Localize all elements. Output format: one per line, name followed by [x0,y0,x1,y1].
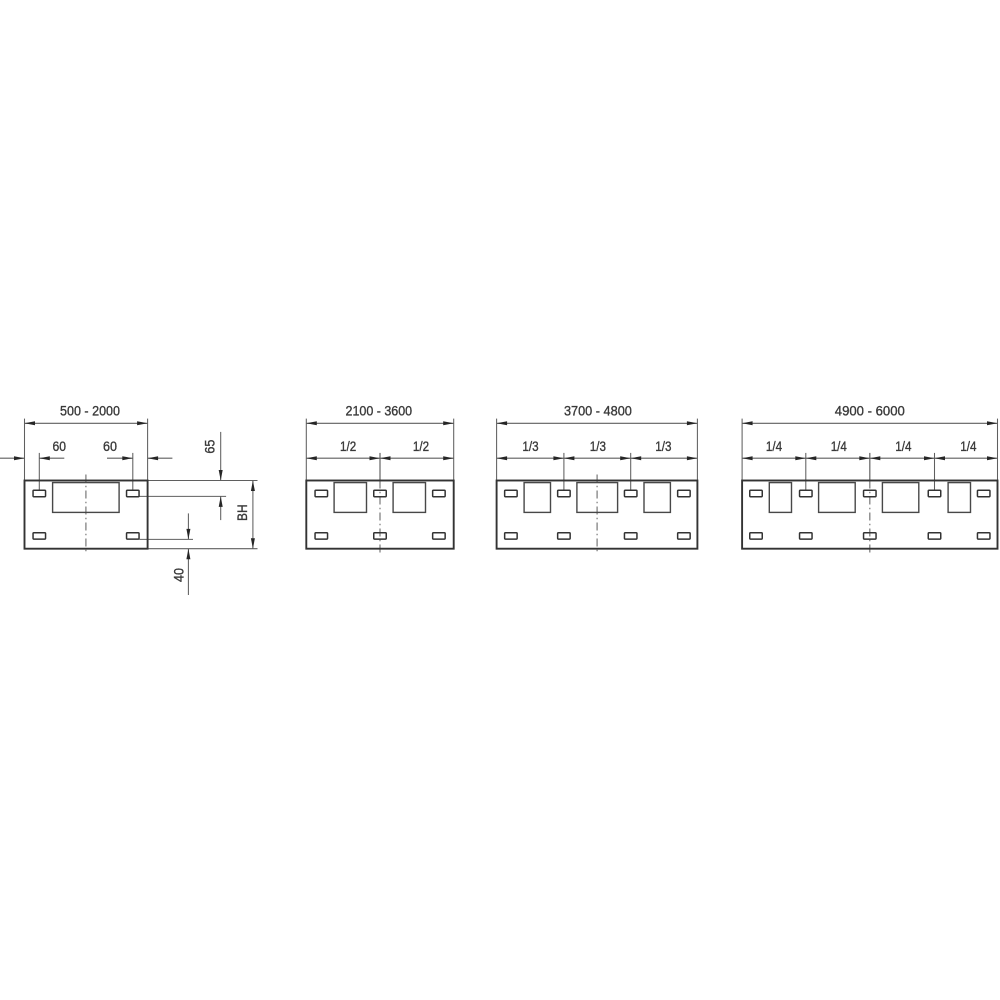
svg-text:3700 - 4800: 3700 - 4800 [564,403,632,419]
svg-text:500 - 2000: 500 - 2000 [60,403,120,419]
svg-text:1/3: 1/3 [522,439,538,455]
svg-text:65: 65 [202,440,218,454]
svg-text:1/3: 1/3 [655,439,671,455]
svg-text:1/3: 1/3 [590,439,606,455]
svg-text:60: 60 [53,439,67,455]
svg-text:1/4: 1/4 [766,439,782,455]
svg-text:1/4: 1/4 [895,439,911,455]
svg-text:1/2: 1/2 [413,439,429,455]
svg-text:BH: BH [235,504,251,521]
svg-text:1/4: 1/4 [960,439,976,455]
svg-text:2100 - 3600: 2100 - 3600 [346,403,413,419]
svg-text:60: 60 [103,439,117,455]
svg-text:40: 40 [172,568,188,582]
svg-text:4900 - 6000: 4900 - 6000 [835,403,905,419]
svg-text:1/2: 1/2 [340,439,356,455]
svg-text:1/4: 1/4 [831,439,847,455]
